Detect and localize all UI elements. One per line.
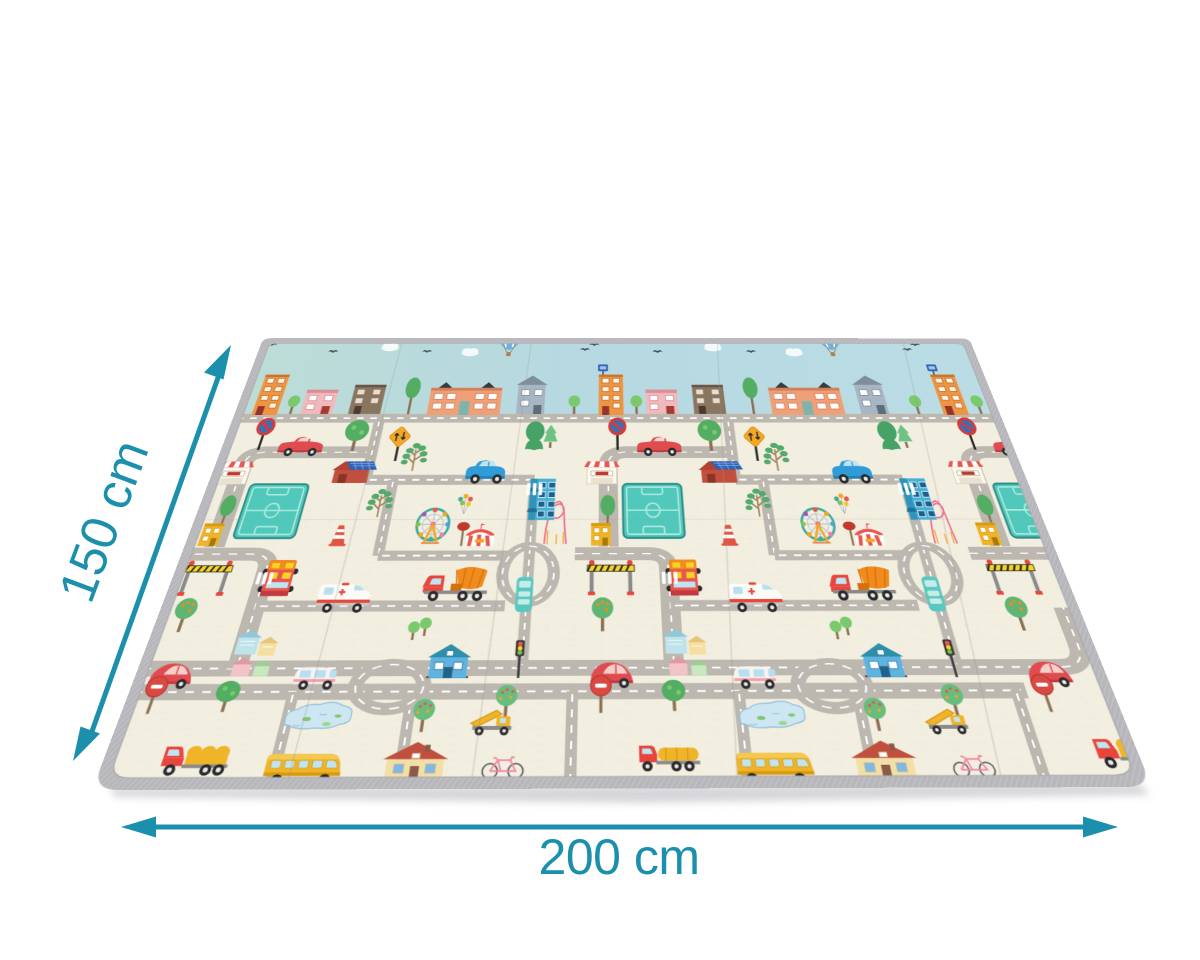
svg-text:200 cm: 200 cm [539, 829, 700, 885]
